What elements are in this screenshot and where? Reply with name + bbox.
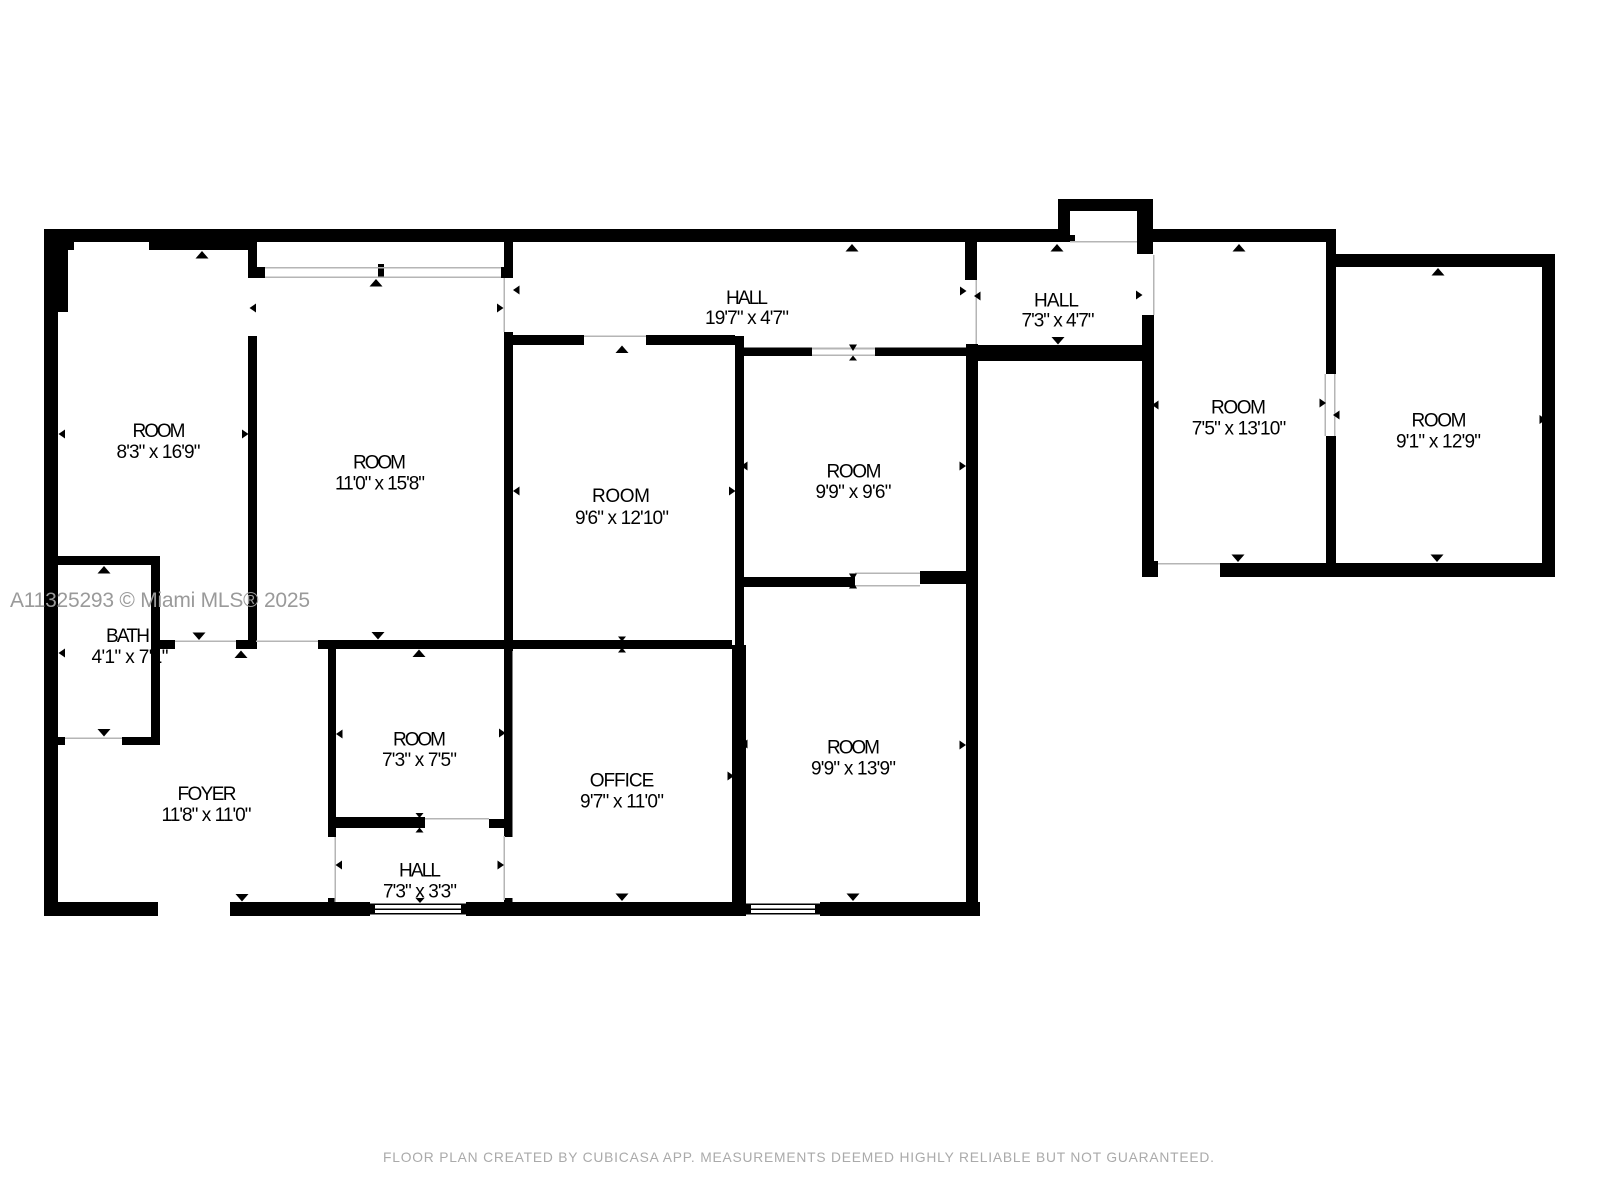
- svg-text:7'3" x 3'3": 7'3" x 3'3": [383, 882, 457, 903]
- svg-text:7'5" x 13'10": 7'5" x 13'10": [1192, 419, 1287, 440]
- svg-text:ROOM: ROOM: [827, 738, 880, 759]
- svg-text:19'7" x 4'7": 19'7" x 4'7": [705, 308, 789, 329]
- svg-text:8'3" x 16'9": 8'3" x 16'9": [117, 442, 201, 463]
- svg-text:9'7" x 11'0": 9'7" x 11'0": [580, 792, 664, 813]
- svg-text:ROOM: ROOM: [133, 421, 186, 442]
- svg-text:9'9" x 9'6": 9'9" x 9'6": [816, 482, 892, 503]
- svg-text:7'3" x 7'5": 7'3" x 7'5": [382, 750, 457, 771]
- svg-text:ROOM: ROOM: [1412, 411, 1467, 432]
- svg-text:9'9" x 13'9": 9'9" x 13'9": [811, 759, 896, 780]
- svg-text:11'8" x 11'0": 11'8" x 11'0": [162, 805, 252, 826]
- svg-text:ROOM: ROOM: [393, 730, 446, 751]
- svg-text:ROOM: ROOM: [592, 486, 650, 507]
- svg-text:ROOM: ROOM: [1211, 398, 1266, 419]
- svg-text:A11325293 © Miami MLS® 2025: A11325293 © Miami MLS® 2025: [10, 589, 310, 612]
- svg-text:HALL: HALL: [726, 288, 768, 309]
- svg-text:11'0" x 15'8": 11'0" x 15'8": [335, 474, 425, 495]
- svg-text:OFFICE: OFFICE: [590, 771, 655, 792]
- svg-text:7'3" x 4'7": 7'3" x 4'7": [1022, 311, 1095, 332]
- svg-text:9'1" x 12'9": 9'1" x 12'9": [1396, 432, 1481, 453]
- svg-text:HALL: HALL: [399, 861, 441, 882]
- svg-text:ROOM: ROOM: [827, 462, 882, 483]
- svg-text:BATH: BATH: [106, 626, 150, 647]
- svg-text:9'6" x 12'10": 9'6" x 12'10": [575, 508, 669, 529]
- svg-text:ROOM: ROOM: [353, 453, 406, 474]
- svg-text:FLOOR PLAN CREATED BY CUBICASA: FLOOR PLAN CREATED BY CUBICASA APP. MEAS…: [383, 1150, 1214, 1165]
- svg-text:FOYER: FOYER: [178, 784, 237, 805]
- svg-text:HALL: HALL: [1034, 291, 1079, 312]
